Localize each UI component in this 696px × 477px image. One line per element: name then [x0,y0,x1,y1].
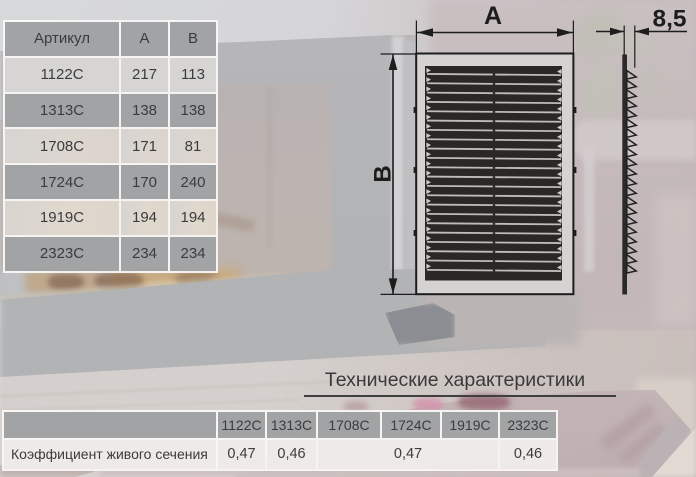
svg-text:8,5: 8,5 [652,6,686,33]
svg-text:A: A [484,2,502,30]
svg-text:B: B [370,165,397,182]
